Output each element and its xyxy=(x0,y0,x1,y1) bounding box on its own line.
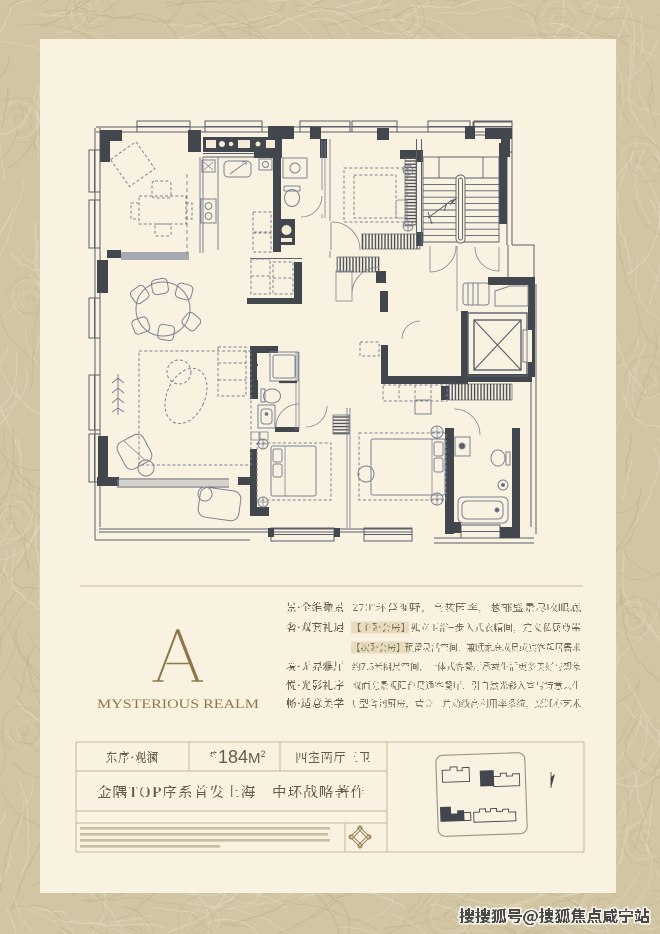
svg-text:MYSTERIOUS REALM: MYSTERIOUS REALM xyxy=(97,696,260,711)
svg-text:184M2: 184M2 xyxy=(218,747,266,767)
